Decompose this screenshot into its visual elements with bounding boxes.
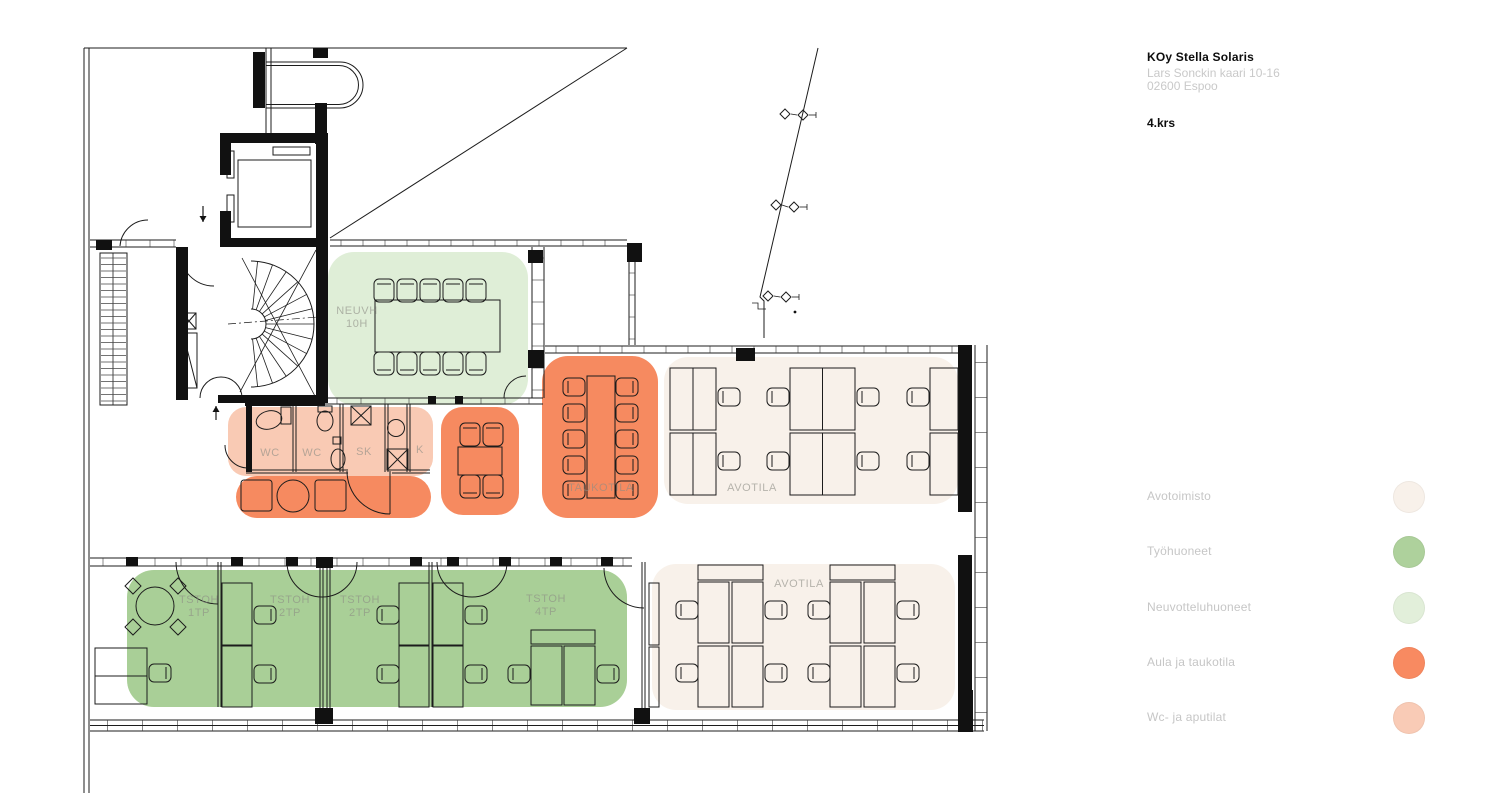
- room-label-neuvh-2: 10H: [346, 318, 368, 330]
- room-label-wc-a: WC: [260, 447, 280, 459]
- room-label-tstoh-4tp: TSTOH: [526, 593, 566, 605]
- address-line-1: Lars Sonckin kaari 10-16: [1147, 66, 1280, 80]
- building-name: KOy Stella Solaris: [1147, 50, 1254, 64]
- legend-item-avotoimisto: Avotoimisto: [1147, 481, 1467, 513]
- room-label-sk: SK: [356, 446, 372, 458]
- zone-wc-aputilat: [228, 407, 433, 476]
- room-label-k: K: [416, 444, 424, 456]
- info-panel: KOy Stella Solaris Lars Sonckin kaari 10…: [1147, 0, 1497, 812]
- room-label-avotila-top: AVOTILA: [727, 482, 777, 494]
- legend-swatch-avotoimisto: [1393, 481, 1425, 513]
- legend-swatch-tyohuoneet: [1393, 536, 1425, 568]
- legend-item-wc-aputilat: Wc- ja aputilat: [1147, 702, 1467, 734]
- room-label-wc-b: WC: [302, 447, 322, 459]
- room-label-tstoh-2tp-b-2: 2TP: [349, 607, 371, 619]
- room-label-tstoh-2tp-a: TSTOH: [270, 594, 310, 606]
- room-label-taukotila: TAUKOTILA: [568, 482, 634, 494]
- zone-tyohuoneet: [127, 570, 627, 707]
- room-label-avotila-bottom: AVOTILA: [774, 578, 824, 590]
- room-label-tstoh-1tp: TSTOH: [179, 594, 219, 606]
- legend-label: Työhuoneet: [1147, 544, 1212, 558]
- legend-label: Neuvotteluhuoneet: [1147, 600, 1251, 614]
- address-line-2: 02600 Espoo: [1147, 79, 1218, 93]
- room-label-tstoh-2tp-b: TSTOH: [340, 594, 380, 606]
- room-label-tstoh-4tp-2: 4TP: [535, 606, 557, 618]
- legend-swatch-neuvotteluhuoneet: [1393, 592, 1425, 624]
- legend-item-aula-taukotila: Aula ja taukotila: [1147, 647, 1467, 679]
- room-label-neuvh: NEUVH: [336, 305, 378, 317]
- legend-label: Aula ja taukotila: [1147, 655, 1235, 669]
- zone-aula-small-room: [441, 407, 519, 515]
- legend-swatch-aula-taukotila: [1393, 647, 1425, 679]
- zone-aula-sofa: [236, 476, 431, 518]
- legend-item-tyohuoneet: Työhuoneet: [1147, 536, 1467, 568]
- legend-swatch-wc-aputilat: [1393, 702, 1425, 734]
- legend-item-neuvotteluhuoneet: Neuvotteluhuoneet: [1147, 592, 1467, 624]
- room-label-tstoh-1tp-2: 1TP: [188, 607, 210, 619]
- legend-label: Wc- ja aputilat: [1147, 710, 1226, 724]
- floor-label: 4.krs: [1147, 116, 1175, 130]
- legend-label: Avotoimisto: [1147, 489, 1211, 503]
- room-label-tstoh-2tp-a-2: 2TP: [279, 607, 301, 619]
